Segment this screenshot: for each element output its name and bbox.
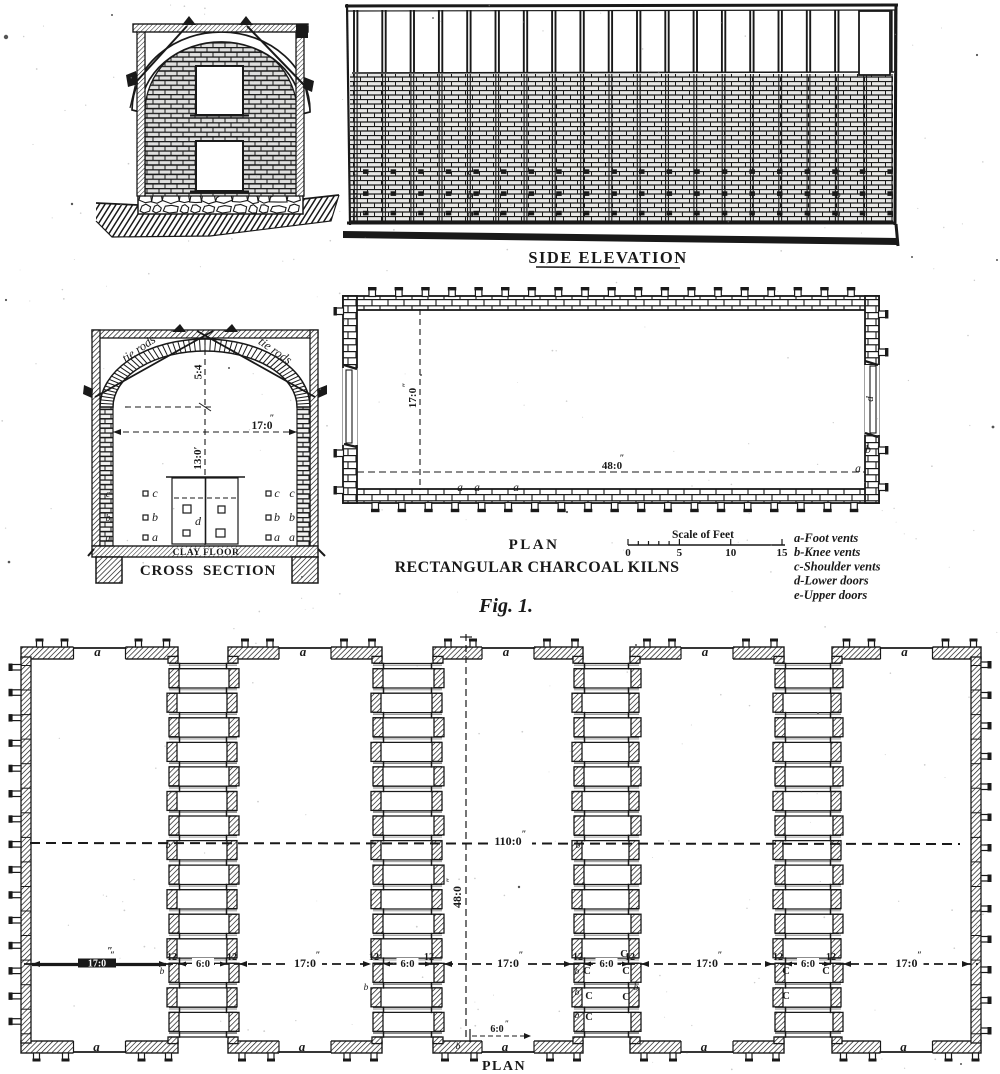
svg-text:b: b xyxy=(289,510,295,524)
svg-text:10: 10 xyxy=(725,547,737,559)
svg-text:12: 12 xyxy=(573,952,583,963)
svg-text:″: ″ xyxy=(620,453,625,463)
svg-text:C: C xyxy=(782,966,790,977)
svg-text:″: ″ xyxy=(445,877,455,882)
svg-text:c: c xyxy=(274,486,280,500)
svg-text:b: b xyxy=(352,190,357,201)
svg-text:b: b xyxy=(160,967,165,977)
svg-text:″: ″ xyxy=(519,950,524,960)
svg-text:c: c xyxy=(468,167,473,178)
svg-text:6:0: 6:0 xyxy=(490,1024,503,1035)
svg-text:a-Foot vents: a-Foot vents xyxy=(794,531,858,545)
svg-text:″: ″ xyxy=(316,950,321,960)
svg-text:e-Upper doors: e-Upper doors xyxy=(794,588,867,602)
svg-text:C: C xyxy=(620,949,628,960)
svg-text:a: a xyxy=(274,530,280,544)
svg-text:d: d xyxy=(864,396,876,402)
svg-text:b: b xyxy=(166,841,171,851)
svg-text:″: ″ xyxy=(522,829,527,839)
svg-text:b: b xyxy=(106,513,111,524)
svg-text:b: b xyxy=(634,983,639,993)
svg-text:a: a xyxy=(474,482,480,494)
svg-text:6:0: 6:0 xyxy=(600,959,614,970)
svg-text:b: b xyxy=(835,190,840,201)
svg-text:b: b xyxy=(152,510,158,524)
svg-text:d: d xyxy=(195,514,202,528)
svg-text:a: a xyxy=(702,644,709,659)
svg-text:c: c xyxy=(353,167,358,178)
svg-text:a: a xyxy=(900,1039,907,1054)
svg-text:b: b xyxy=(575,967,580,977)
svg-text:12: 12 xyxy=(369,952,379,963)
svg-text:Scale of Feet: Scale of Feet xyxy=(672,529,734,541)
svg-text:CLAY FLOOR: CLAY FLOOR xyxy=(173,548,240,558)
svg-text:a: a xyxy=(513,482,519,494)
svg-text:15: 15 xyxy=(777,547,789,559)
svg-text:″: ″ xyxy=(505,1019,509,1028)
svg-text:0: 0 xyxy=(625,547,631,559)
svg-text:″: ″ xyxy=(917,950,922,960)
svg-text:12: 12 xyxy=(826,952,836,963)
svg-text:″: ″ xyxy=(107,946,113,957)
svg-text:a: a xyxy=(352,209,357,220)
svg-text:17:0: 17:0 xyxy=(294,956,316,970)
svg-text:a: a xyxy=(855,463,861,475)
svg-text:a: a xyxy=(701,1039,708,1054)
svg-text:a: a xyxy=(152,530,158,544)
svg-text:c: c xyxy=(289,486,295,500)
svg-text:6:0: 6:0 xyxy=(401,959,415,970)
svg-text:b: b xyxy=(274,510,280,524)
svg-text:C: C xyxy=(822,966,830,977)
svg-text:6:0: 6:0 xyxy=(801,959,815,970)
svg-text:Fig. 1.: Fig. 1. xyxy=(478,595,533,617)
svg-text:d-Lower doors: d-Lower doors xyxy=(794,574,869,588)
svg-text:b: b xyxy=(575,988,580,998)
svg-text:5: 5 xyxy=(677,547,683,559)
svg-text:RECTANGULAR CHARCOAL KILNS: RECTANGULAR CHARCOAL KILNS xyxy=(395,559,680,576)
svg-text:CROSS SECTION: CROSS SECTION xyxy=(140,563,276,579)
svg-text:PLAN: PLAN xyxy=(509,537,560,553)
svg-text:C: C xyxy=(585,991,593,1002)
svg-text:″: ″ xyxy=(270,413,275,423)
svg-text:48:0: 48:0 xyxy=(450,886,464,908)
svg-text:C: C xyxy=(622,992,630,1003)
svg-text:12: 12 xyxy=(424,952,434,963)
svg-text:110:0: 110:0 xyxy=(494,834,521,848)
svg-text:a: a xyxy=(300,644,307,659)
svg-text:a: a xyxy=(901,644,908,659)
svg-text:c: c xyxy=(106,489,111,500)
svg-text:b-Knee vents: b-Knee vents xyxy=(794,545,860,559)
svg-text:b: b xyxy=(865,444,871,456)
svg-text:12: 12 xyxy=(227,952,237,963)
svg-text:a: a xyxy=(289,530,295,544)
svg-text:17:0: 17:0 xyxy=(696,956,718,970)
svg-text:b: b xyxy=(575,1011,580,1021)
svg-text:″: ″ xyxy=(401,382,411,387)
svg-text:a: a xyxy=(94,644,101,659)
svg-text:17:0: 17:0 xyxy=(88,959,106,970)
svg-text:17:0: 17:0 xyxy=(896,956,918,970)
svg-text:a: a xyxy=(299,1039,306,1054)
svg-text:a: a xyxy=(503,644,510,659)
svg-text:a: a xyxy=(93,1039,100,1054)
svg-text:a: a xyxy=(835,209,840,220)
svg-text:b: b xyxy=(576,841,581,851)
svg-text:6:0: 6:0 xyxy=(196,959,210,970)
svg-text:″: ″ xyxy=(718,950,723,960)
svg-text:C: C xyxy=(782,991,790,1002)
svg-text:17:0: 17:0 xyxy=(407,387,419,408)
svg-text:17:0: 17:0 xyxy=(497,956,519,970)
svg-text:a: a xyxy=(106,533,111,544)
svg-text:c-Shoulder vents: c-Shoulder vents xyxy=(794,559,881,573)
svg-text:c: c xyxy=(836,167,841,178)
svg-text:c: c xyxy=(152,486,158,500)
svg-text:C: C xyxy=(622,966,630,977)
svg-text:13:0′: 13:0′ xyxy=(192,446,204,469)
svg-text:PLAN: PLAN xyxy=(482,1059,526,1074)
svg-text:b: b xyxy=(364,983,369,993)
svg-text:a: a xyxy=(457,482,463,494)
svg-text:12: 12 xyxy=(167,952,177,963)
svg-text:a: a xyxy=(502,1039,509,1054)
svg-text:SIDE ELEVATION: SIDE ELEVATION xyxy=(528,248,687,267)
svg-text:5:4: 5:4 xyxy=(193,364,205,379)
svg-text:C: C xyxy=(585,1012,593,1023)
svg-text:C: C xyxy=(583,966,591,977)
svg-text:b: b xyxy=(467,190,472,201)
svg-text:a: a xyxy=(467,209,472,220)
svg-text:12: 12 xyxy=(773,952,783,963)
svg-text:b: b xyxy=(456,1042,461,1052)
